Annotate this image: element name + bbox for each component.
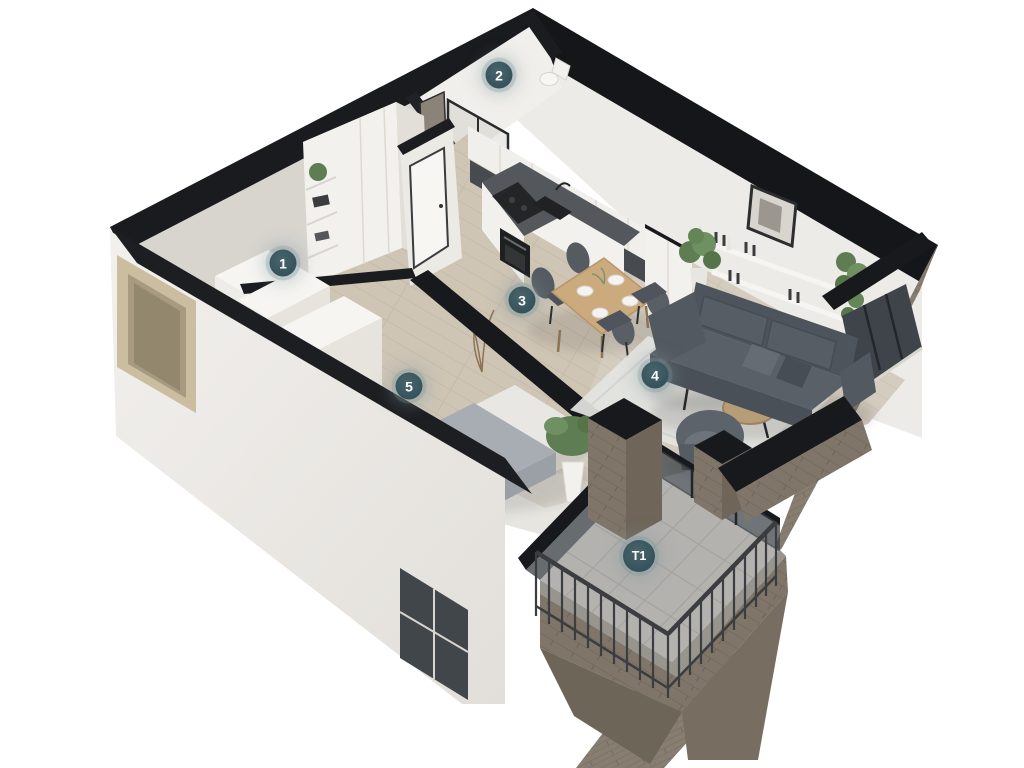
room-badge-1[interactable]: 1 — [270, 250, 297, 277]
room-badge-5[interactable]: 5 — [396, 373, 423, 400]
room-badge-4[interactable]: 4 — [642, 362, 669, 389]
room-badge-2[interactable]: 2 — [486, 62, 513, 89]
balcony-column — [588, 398, 662, 540]
apartment-3d-floorplan: 1 2 3 4 5 T1 — [0, 0, 1024, 768]
shelf-plant — [309, 163, 327, 181]
floorplan-render — [0, 0, 1024, 768]
terrace-badge-t1[interactable]: T1 — [623, 540, 655, 572]
entry-door — [410, 148, 448, 268]
room-badge-3[interactable]: 3 — [509, 287, 536, 314]
